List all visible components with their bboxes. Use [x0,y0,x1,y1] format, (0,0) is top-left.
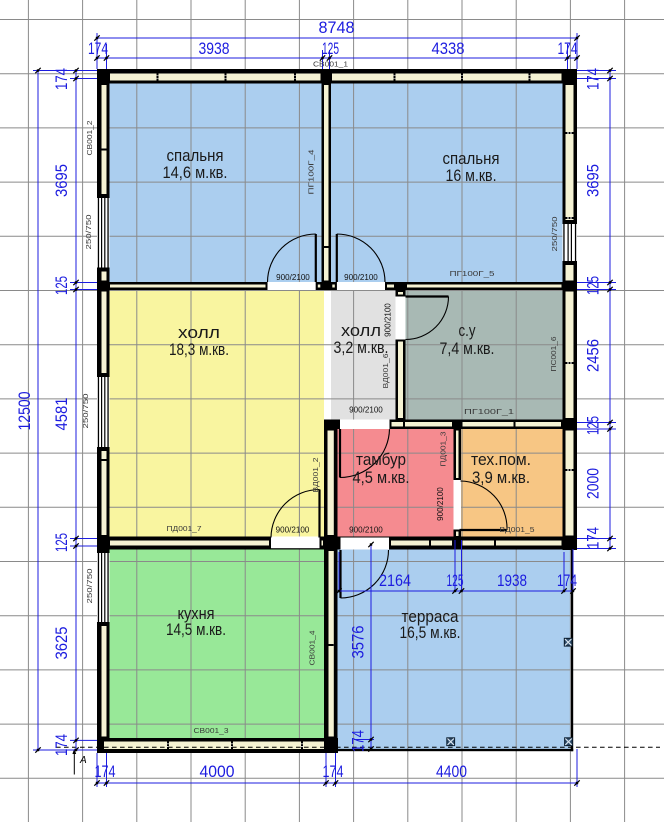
svg-text:2000: 2000 [585,468,603,499]
svg-text:7,4 м.кв.: 7,4 м.кв. [440,340,495,358]
svg-text:4581: 4581 [53,398,71,431]
svg-text:3625: 3625 [53,627,71,660]
svg-text:3576: 3576 [350,626,368,659]
svg-text:174: 174 [88,40,108,58]
svg-text:СВ001_1: СВ001_1 [313,60,348,69]
svg-text:125: 125 [322,40,339,58]
svg-text:250/750: 250/750 [84,215,93,250]
svg-text:4338: 4338 [432,40,465,58]
svg-text:ПГ100Г_4: ПГ100Г_4 [307,150,316,195]
svg-text:2456: 2456 [585,339,603,372]
svg-text:250/750: 250/750 [85,569,94,604]
svg-text:ПД001_7: ПД001_7 [167,524,202,533]
svg-text:14,5 м.кв.: 14,5 м.кв. [166,621,226,639]
svg-text:4400: 4400 [436,763,467,781]
svg-text:174: 174 [350,730,368,752]
svg-text:2164: 2164 [379,572,411,590]
svg-text:174: 174 [557,572,577,590]
svg-text:16 м.кв.: 16 м.кв. [446,167,497,185]
svg-text:СВ001_2: СВ001_2 [85,121,94,156]
svg-text:900/2100: 900/2100 [349,526,383,535]
svg-text:174: 174 [95,763,116,781]
svg-text:СВ001_4: СВ001_4 [308,631,317,666]
svg-text:1938: 1938 [497,572,527,590]
svg-text:тех.пом.: тех.пом. [471,451,531,469]
svg-text:16,5 м.кв.: 16,5 м.кв. [400,624,461,642]
svg-text:900/2100: 900/2100 [344,273,378,282]
svg-text:900/2100: 900/2100 [384,303,393,337]
svg-text:3695: 3695 [53,164,71,197]
svg-text:тамбур: тамбур [356,451,406,469]
svg-text:125: 125 [585,276,603,295]
svg-text:4000: 4000 [200,763,235,781]
svg-text:холл: холл [178,324,220,342]
svg-text:174: 174 [585,527,603,549]
svg-text:125: 125 [585,416,603,435]
svg-text:250/750: 250/750 [550,217,559,252]
svg-text:900/2100: 900/2100 [436,487,445,521]
svg-text:4,5 м.кв.: 4,5 м.кв. [353,469,410,487]
svg-text:14,6 м.кв.: 14,6 м.кв. [163,164,228,182]
svg-text:с.у: с.у [459,322,477,340]
svg-text:холл: холл [341,322,381,340]
svg-text:174: 174 [53,68,71,90]
svg-text:ПС001_6: ПС001_6 [549,337,558,372]
svg-text:174: 174 [558,40,578,58]
svg-text:125: 125 [53,533,71,552]
svg-text:250/750: 250/750 [81,394,90,429]
svg-text:18,3 м.кв.: 18,3 м.кв. [169,341,229,359]
svg-text:ВД001_6: ВД001_6 [381,354,390,389]
svg-text:900/2100: 900/2100 [276,273,310,282]
svg-text:спальня: спальня [443,150,500,168]
svg-text:900/2100: 900/2100 [349,406,383,415]
svg-text:3,9 м.кв.: 3,9 м.кв. [472,469,530,487]
svg-text:900/2100: 900/2100 [276,526,310,535]
svg-text:ПГ100Г_1: ПГ100Г_1 [464,407,514,416]
svg-text:ВД001_2: ВД001_2 [311,458,320,493]
svg-text:12500: 12500 [16,392,34,431]
svg-text:A: A [79,755,87,766]
svg-text:174: 174 [585,68,603,90]
svg-text:125: 125 [53,276,71,295]
svg-text:174: 174 [323,763,344,781]
svg-text:ПГ100Г_5: ПГ100Г_5 [450,269,495,278]
svg-text:3695: 3695 [585,164,603,197]
svg-text:ПД001_3: ПД001_3 [439,432,448,467]
svg-text:125: 125 [447,572,464,590]
svg-text:ВД001_5: ВД001_5 [500,525,535,534]
svg-text:8748: 8748 [319,19,355,37]
svg-text:3938: 3938 [199,40,230,58]
svg-text:спальня: спальня [167,147,224,165]
svg-text:СВ001_3: СВ001_3 [194,726,229,735]
svg-text:174: 174 [53,734,71,756]
